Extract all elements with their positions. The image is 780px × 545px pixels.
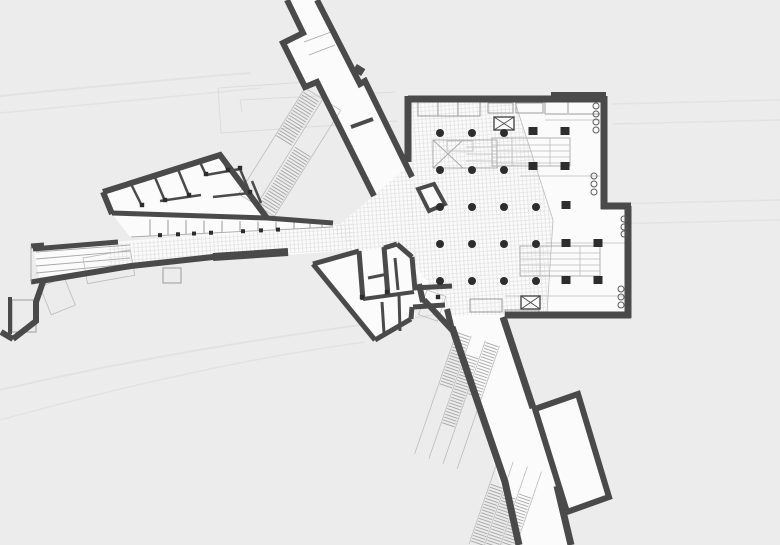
door-post bbox=[385, 290, 389, 294]
shop-door-tick bbox=[241, 229, 245, 233]
floor-plan-canvas bbox=[0, 0, 780, 545]
round-column bbox=[532, 240, 540, 248]
door-post bbox=[238, 166, 242, 170]
round-column bbox=[468, 240, 476, 248]
door-post bbox=[187, 193, 191, 197]
door-post bbox=[204, 172, 208, 176]
square-column bbox=[594, 239, 603, 247]
round-column bbox=[532, 277, 540, 285]
shop-door-tick bbox=[209, 231, 213, 235]
round-column bbox=[436, 166, 444, 174]
round-column bbox=[532, 203, 540, 211]
round-column bbox=[436, 277, 444, 285]
square-column bbox=[561, 162, 570, 170]
shop-door-tick bbox=[192, 232, 196, 236]
round-column bbox=[500, 240, 508, 248]
shop-door-tick bbox=[158, 233, 162, 237]
round-column bbox=[500, 277, 508, 285]
square-column bbox=[529, 162, 538, 170]
door-post bbox=[163, 198, 167, 202]
shop-door-tick bbox=[176, 232, 180, 236]
door-post bbox=[248, 190, 252, 194]
door-post bbox=[360, 295, 364, 299]
round-column bbox=[436, 240, 444, 248]
round-column bbox=[468, 203, 476, 211]
round-column bbox=[468, 277, 476, 285]
door-post bbox=[140, 203, 144, 207]
round-column bbox=[468, 166, 476, 174]
square-column bbox=[562, 276, 571, 284]
shop-door-tick bbox=[259, 228, 263, 232]
round-column bbox=[500, 129, 508, 137]
square-column bbox=[562, 239, 571, 247]
square-column bbox=[594, 276, 603, 284]
round-column bbox=[500, 166, 508, 174]
square-column bbox=[529, 127, 538, 135]
floor-plan-drawing bbox=[0, 0, 780, 545]
square-column bbox=[562, 201, 571, 209]
round-column bbox=[500, 203, 508, 211]
door-post bbox=[226, 168, 230, 172]
square-column bbox=[561, 127, 570, 135]
shop-door-tick bbox=[276, 228, 280, 232]
door-post bbox=[436, 295, 440, 299]
round-column bbox=[436, 203, 444, 211]
elevator-top bbox=[494, 117, 514, 130]
round-column bbox=[436, 129, 444, 137]
round-column bbox=[468, 129, 476, 137]
elevator-bottom bbox=[521, 296, 540, 309]
